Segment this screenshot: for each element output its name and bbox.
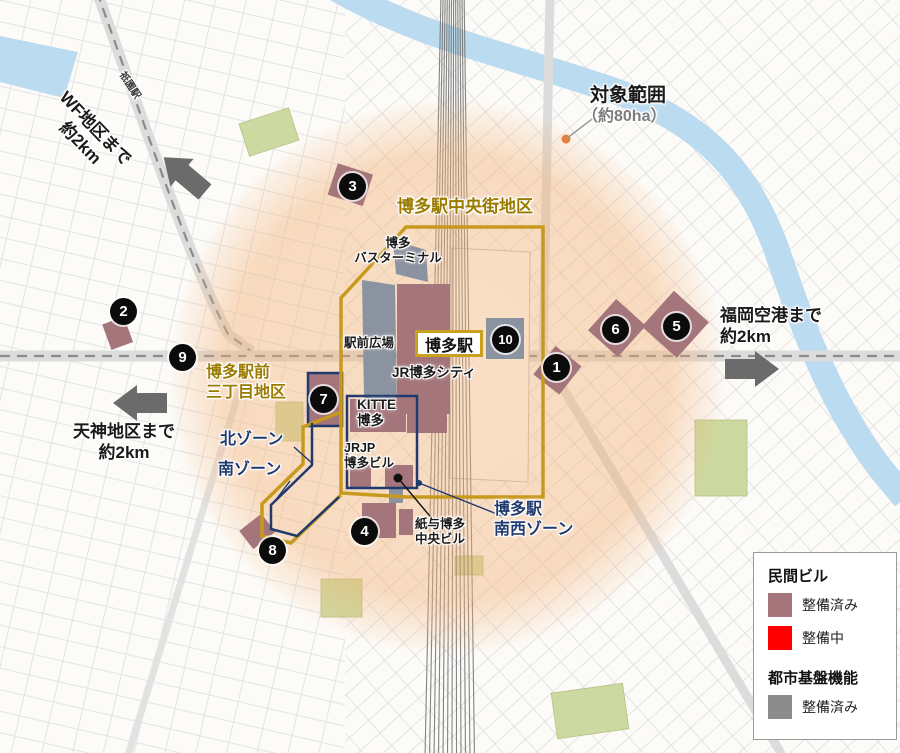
hakata-station-box: 博多駅: [415, 330, 483, 357]
jr-hakata-city-label: JR博多シティ: [392, 365, 476, 381]
legend-swatch-private-under-construction: [768, 626, 792, 650]
legend-item: 整備中: [768, 626, 896, 650]
map-figure: WF地区まで 約2km 祇園駅 対象範囲 （約80ha） 博多駅中央街地区 博多…: [0, 0, 900, 753]
legend-section-title: 民間ビル: [768, 565, 896, 586]
legend-item-label: 整備済み: [802, 697, 858, 717]
jr-hakata-city-annex: [407, 400, 447, 433]
legend-item-label: 整備中: [802, 628, 844, 648]
marker-3: 3: [339, 173, 366, 200]
legend-item: 整備済み: [768, 593, 896, 617]
marker-1: 1: [543, 354, 570, 381]
legend-item-label: 整備済み: [802, 595, 858, 615]
kamiyo-hakata-label: 紙与博多 中央ビル: [415, 517, 465, 548]
chuogai-district-label: 博多駅中央街地区: [397, 197, 533, 218]
legend: 民間ビル 整備済み 整備中 都市基盤機能 整備済み: [753, 552, 897, 740]
park: [551, 683, 629, 739]
marker-8: 8: [259, 537, 286, 564]
marker-2: 2: [110, 298, 137, 325]
southwest-zone-label: 博多駅 南西ゾーン: [494, 500, 573, 539]
target-area-title: 対象範囲: [590, 84, 666, 107]
legend-section-title: 都市基盤機能: [768, 667, 896, 688]
marker-4: 4: [351, 518, 378, 545]
south-zone-label: 南ゾーン: [218, 460, 281, 480]
legend-swatch-infra-built: [768, 695, 792, 719]
jrjp-hakata-label: JRJP 博多ビル: [344, 441, 394, 472]
marker-9: 9: [169, 344, 196, 371]
north-zone-label: 北ゾーン: [220, 430, 283, 450]
station-plaza-label: 駅前広場: [344, 336, 394, 351]
sanchome-district-label: 博多駅前 三丁目地区: [206, 363, 286, 402]
marker-10: 10: [492, 326, 519, 353]
tenjin-distance-label: 天神地区まで 約2km: [62, 422, 186, 463]
marker-7: 7: [310, 386, 337, 413]
target-area-size: （約80ha）: [582, 107, 666, 127]
building-small-south: [399, 509, 413, 535]
kitte-hakata-label: KITTE 博多: [357, 397, 396, 430]
legend-item: 整備済み: [768, 695, 896, 719]
marker-5: 5: [663, 313, 690, 340]
southwest-leader-dot: [416, 480, 422, 486]
bus-terminal-label: 博多 バスターミナル: [338, 236, 458, 267]
airport-distance-label: 福岡空港まで 約2km: [720, 306, 822, 347]
legend-swatch-private-built: [768, 593, 792, 617]
marker-6: 6: [602, 316, 629, 343]
